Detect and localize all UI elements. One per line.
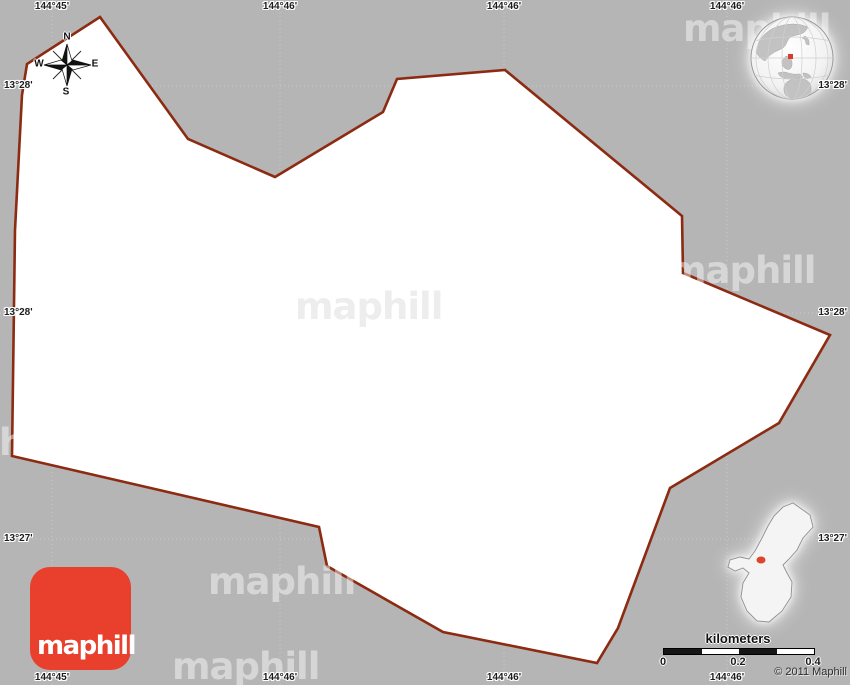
scale-tick-label: 0 <box>660 656 666 668</box>
island-region-marker <box>757 557 766 564</box>
map-canvas: maphill maphill maphill maphill maphill … <box>0 0 850 685</box>
latitude-label: 13°28' <box>4 307 33 318</box>
longitude-label: 144°46' <box>263 672 297 683</box>
latitude-label: 13°27' <box>4 533 33 544</box>
latitude-label: 13°28' <box>818 80 847 91</box>
longitude-label: 144°46' <box>487 1 521 12</box>
scale-bar-segment <box>664 649 702 654</box>
maphill-logo-text: maphill <box>37 631 135 661</box>
globe-location-marker <box>788 54 793 59</box>
scale-tick-label: 0.2 <box>730 656 745 668</box>
longitude-label: 144°46' <box>487 672 521 683</box>
longitude-label: 144°46' <box>263 1 297 12</box>
longitude-label: 144°45' <box>35 1 69 12</box>
compass-star <box>44 44 91 86</box>
island-locator-inset <box>720 496 822 630</box>
latitude-label: 13°27' <box>818 533 847 544</box>
scale-bar-segment <box>739 649 777 654</box>
scale-bar-title: kilometers <box>705 631 770 646</box>
island-outline <box>728 503 813 622</box>
maphill-logo: maphill <box>30 567 131 670</box>
compass-label-west: W <box>34 59 43 70</box>
copyright-text: © 2011 Maphill <box>774 666 847 678</box>
compass-label-east: E <box>92 59 99 70</box>
scale-bar <box>663 648 815 655</box>
scale-bar-segment <box>702 649 740 654</box>
longitude-label: 144°46' <box>710 672 744 683</box>
longitude-label: 144°46' <box>710 1 744 12</box>
compass-label-south: S <box>63 87 70 98</box>
longitude-label: 144°45' <box>35 672 69 683</box>
latitude-label: 13°28' <box>818 307 847 318</box>
latitude-label: 13°28' <box>4 80 33 91</box>
scale-bar-segment <box>777 649 815 654</box>
compass-label-north: N <box>63 32 70 43</box>
